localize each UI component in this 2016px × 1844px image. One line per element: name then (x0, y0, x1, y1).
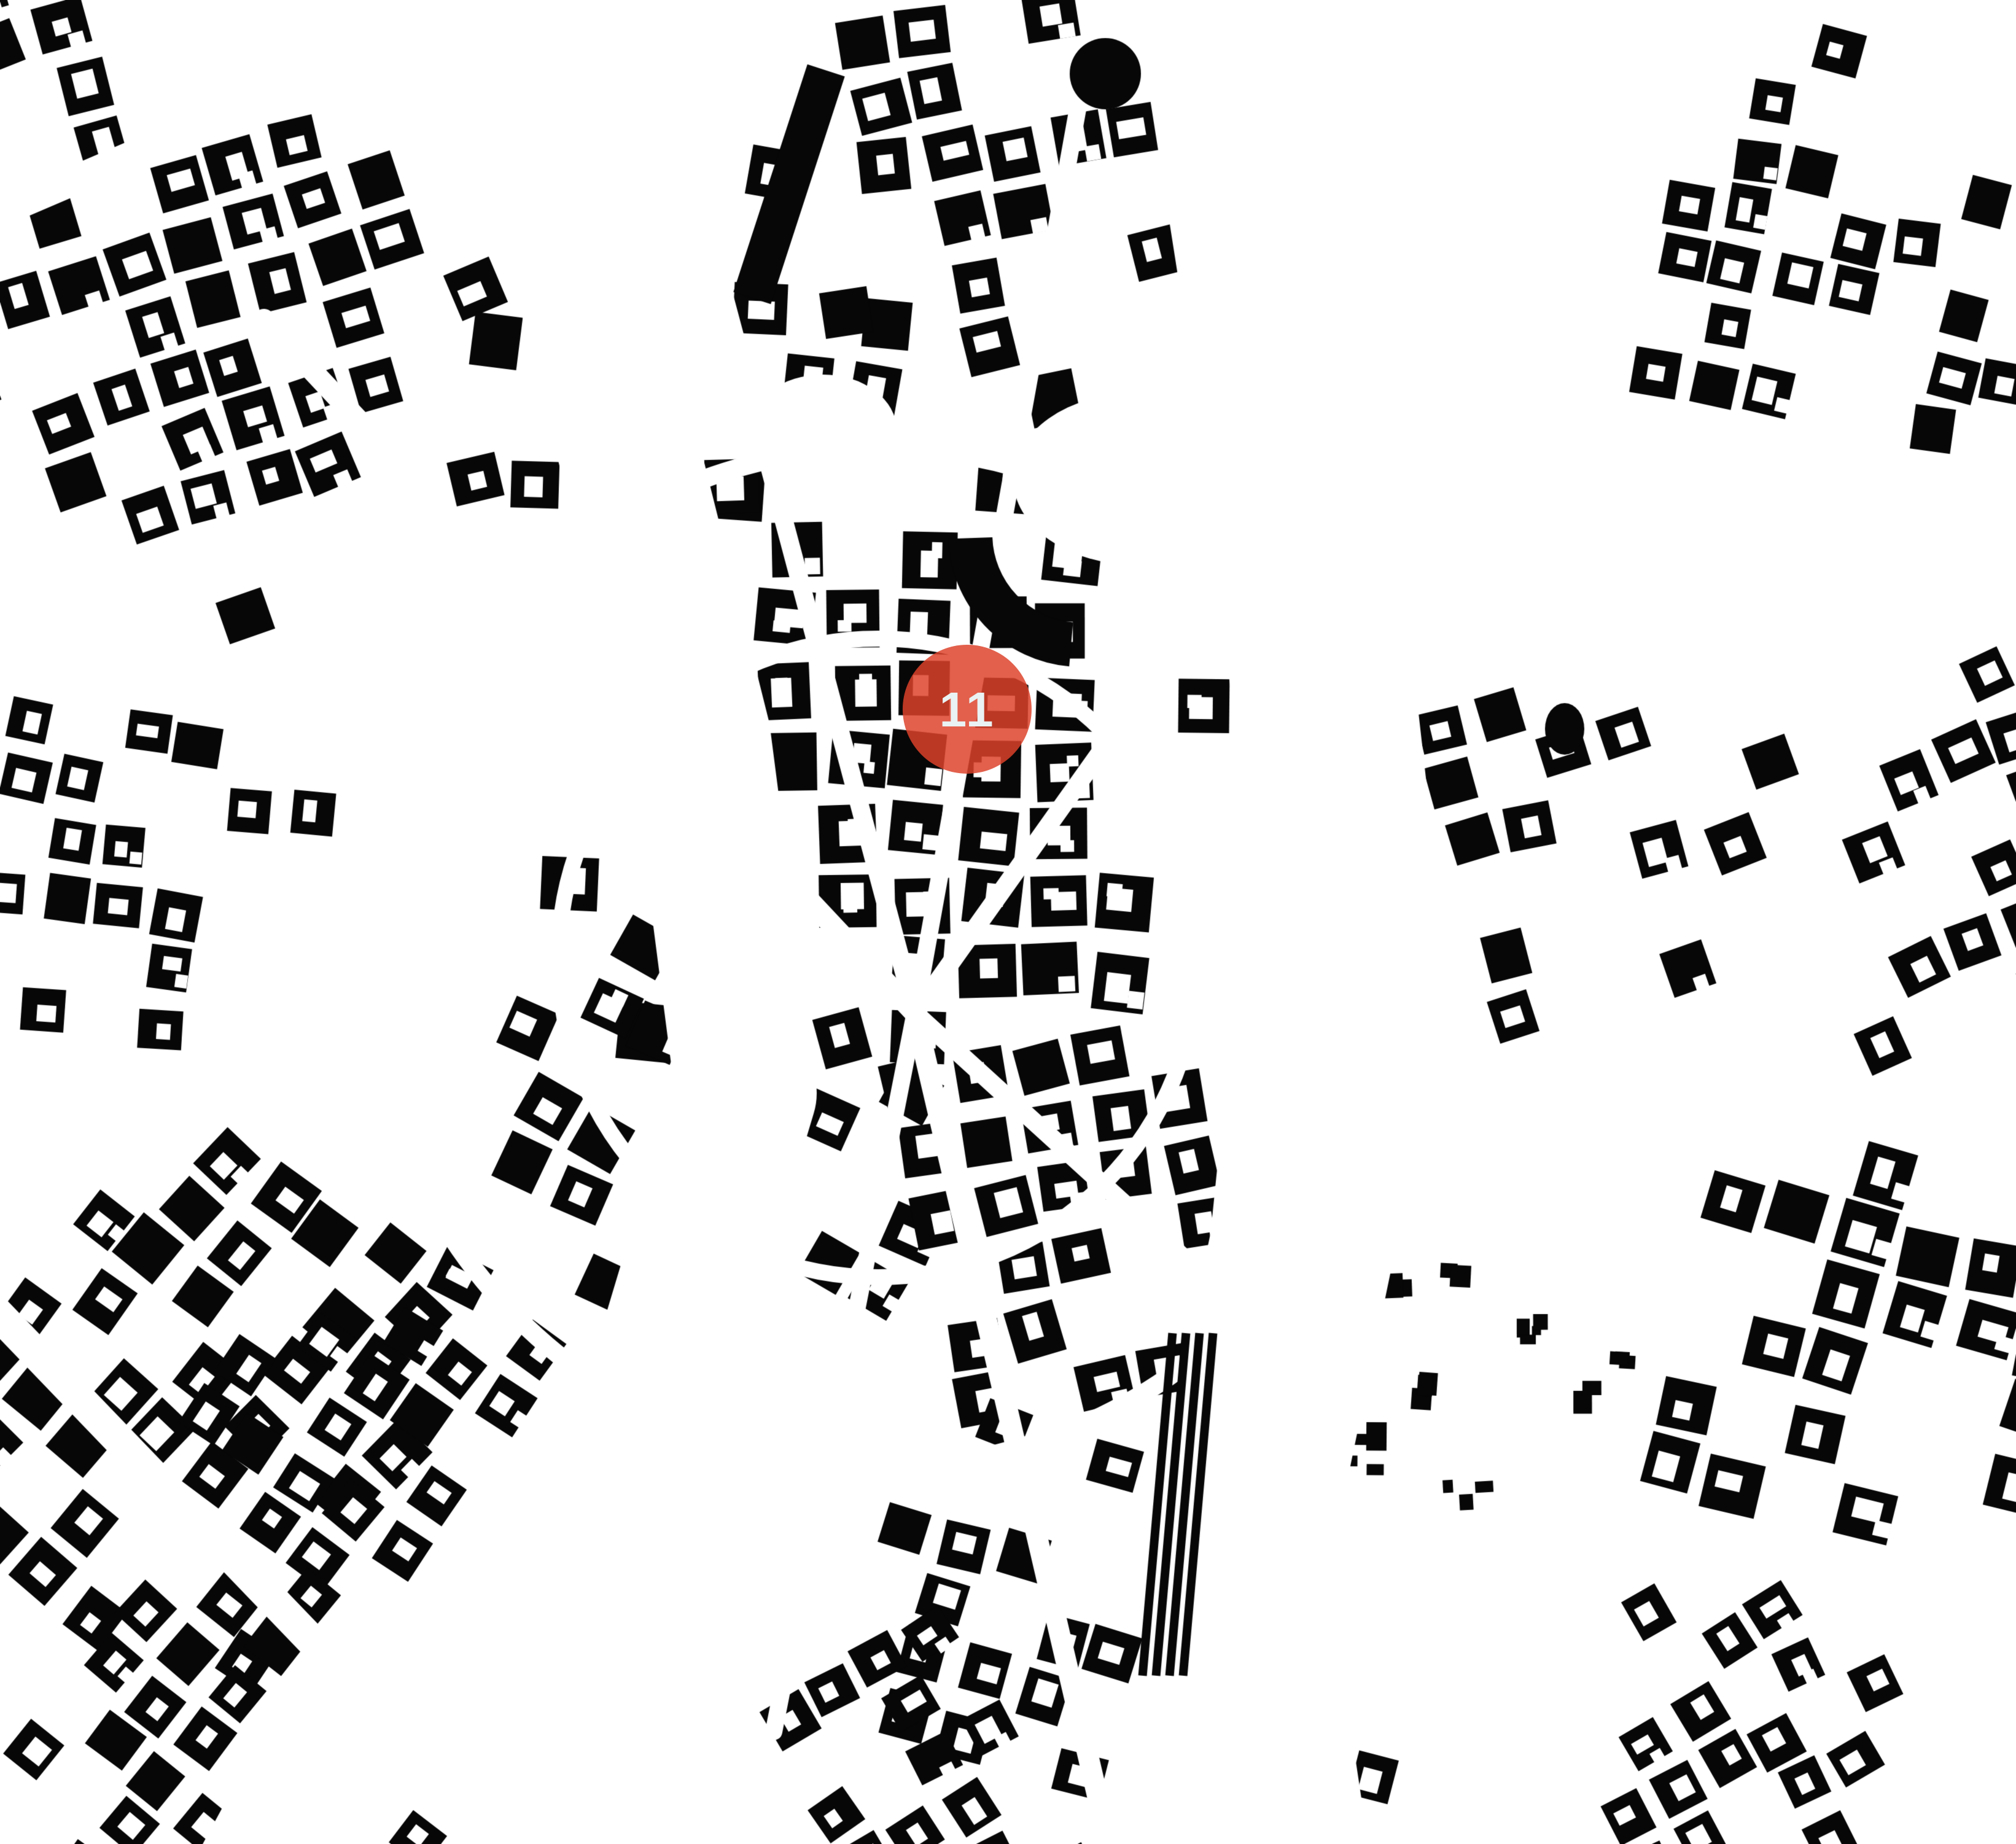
building-footprint-layer (0, 0, 2016, 1844)
city-figure-ground-map: 11 (0, 0, 2016, 1844)
location-marker-label: 11 (940, 685, 995, 734)
location-marker[interactable]: 11 (903, 645, 1032, 774)
